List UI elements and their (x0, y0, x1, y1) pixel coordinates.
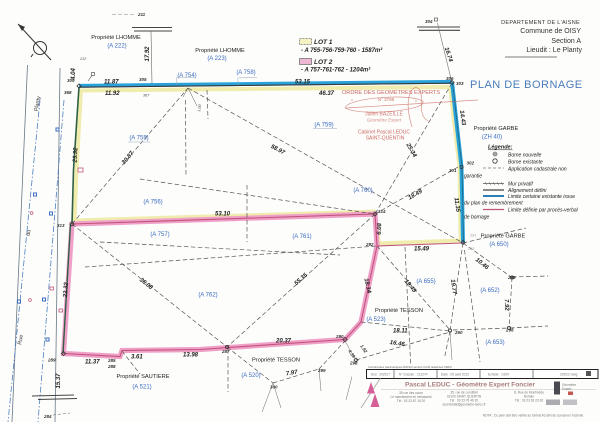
svg-text:13.98: 13.98 (183, 353, 199, 359)
svg-text:secretariat@geometre-leduc.fr: secretariat@geometre-leduc.fr (442, 403, 486, 407)
svg-text:Borne nouvelle: Borne nouvelle (508, 153, 542, 159)
svg-text:303: 303 (456, 81, 464, 86)
svg-text:11.92: 11.92 (105, 91, 120, 97)
svg-text:N° 3798: N° 3798 (378, 97, 395, 102)
svg-text:11.37: 11.37 (85, 360, 100, 366)
svg-text:Tél : 03 23 67 15 20: Tél : 03 23 67 15 20 (397, 399, 426, 403)
svg-text:Propriété GARBE: Propriété GARBE (481, 234, 526, 240)
svg-text:(A 759): (A 759) (314, 123, 333, 129)
svg-text:du: du (26, 229, 33, 236)
svg-text:288: 288 (107, 364, 116, 369)
svg-text:293: 293 (467, 247, 475, 251)
svg-text:DEPARTEMENT DE L'AISNE: DEPARTEMENT DE L'AISNE (501, 20, 580, 26)
svg-text:NOTA : Ce plan doit être vérif: NOTA : Ce plan doit être vérifié au form… (483, 414, 584, 418)
svg-text:*: * (351, 99, 353, 105)
svg-text:Limite définie par procès-verb: Limite définie par procès-verbal (508, 208, 579, 214)
svg-text:(A 756): (A 756) (143, 200, 162, 206)
svg-text:305: 305 (139, 77, 147, 82)
svg-text:Expert: Expert (562, 387, 571, 391)
svg-text:(A 761): (A 761) (292, 234, 311, 240)
svg-text:LOT 2: LOT 2 (314, 59, 333, 66)
svg-text:Commune de OISY: Commune de OISY (520, 28, 581, 35)
svg-text:(A 655): (A 655) (416, 279, 435, 285)
svg-text:Section A: Section A (551, 38, 581, 45)
svg-text:(A 520): (A 520) (241, 373, 260, 379)
svg-text:284: 284 (43, 414, 52, 419)
svg-text:(A 521): (A 521) (132, 385, 151, 391)
svg-text:*: * (415, 100, 417, 106)
svg-text:Propriété TESSON: Propriété TESSON (375, 308, 423, 314)
svg-text:(A 523): (A 523) (366, 317, 385, 323)
svg-text:Limite certaine existante issu: Limite certaine existante issue (508, 194, 575, 200)
svg-text:(A 222): (A 222) (107, 44, 126, 50)
svg-text:232: 232 (79, 57, 87, 61)
svg-text:306: 306 (446, 76, 454, 81)
svg-text:23.32: 23.32 (63, 282, 70, 299)
svg-text:Borne existante: Borne existante (508, 160, 543, 166)
svg-text:285: 285 (107, 358, 116, 363)
svg-text:53.15: 53.15 (295, 80, 311, 86)
svg-text:Propriété TESSON: Propriété TESSON (252, 358, 300, 364)
svg-text:260: 260 (454, 330, 463, 335)
svg-text:(A 762): (A 762) (198, 293, 217, 299)
svg-text:53.10: 53.10 (215, 212, 231, 218)
svg-text:367: 367 (143, 94, 150, 98)
svg-text:298: 298 (505, 328, 514, 333)
svg-text:Coordonnées planimétriques RGF: Coordonnées planimétriques RGF93 Lambert… (368, 365, 452, 369)
svg-text:46.37: 46.37 (318, 91, 335, 97)
svg-text:202917.dwg: 202917.dwg (560, 373, 578, 377)
svg-text:300: 300 (270, 385, 278, 390)
svg-text:23.92: 23.92 (73, 147, 80, 164)
svg-text:(ZH 40): (ZH 40) (482, 135, 502, 141)
svg-text:Propriété SAUTIERE: Propriété SAUTIERE (116, 374, 169, 380)
svg-text:6.08: 6.08 (377, 222, 383, 235)
svg-text:(A 757): (A 757) (150, 232, 169, 238)
svg-text:(A 760): (A 760) (353, 188, 372, 194)
svg-text:301: 301 (449, 168, 457, 173)
svg-text:18.11: 18.11 (393, 329, 408, 335)
svg-text:Propriété GARBE: Propriété GARBE (474, 126, 519, 132)
svg-text:17.92: 17.92 (145, 46, 151, 62)
svg-text:SAINT-QUENTIN: SAINT-QUENTIN (366, 136, 405, 142)
svg-text:(A 755): (A 755) (129, 136, 148, 142)
svg-text:- A 757-761-762 - 1204m²: - A 757-761-762 - 1204m² (301, 67, 371, 74)
svg-text:LOT 1: LOT 1 (314, 39, 333, 46)
svg-text:Lieudit : Le Planty: Lieudit : Le Planty (526, 47, 582, 54)
svg-text:7.92: 7.92 (503, 299, 510, 312)
svg-text:302: 302 (467, 161, 475, 166)
svg-text:314: 314 (378, 209, 386, 214)
svg-text:292: 292 (365, 242, 374, 247)
svg-text:(A 223): (A 223) (207, 56, 226, 62)
svg-text:(A 754): (A 754) (177, 73, 196, 79)
svg-text:garantie: garantie (464, 174, 482, 180)
svg-text:Géomètre Expert: Géomètre Expert (367, 118, 402, 123)
svg-text:20.37: 20.37 (275, 339, 292, 345)
svg-text:Propriété LHOMME: Propriété LHOMME (91, 35, 141, 41)
svg-text:309: 309 (67, 78, 75, 83)
svg-text:- A 755-756-759-760 - 1587m²: - A 755-756-759-760 - 1587m² (301, 47, 383, 54)
svg-text:368: 368 (64, 90, 72, 95)
svg-text:287: 287 (221, 349, 230, 354)
svg-text:Application cadastrale non: Application cadastrale non (507, 167, 567, 173)
svg-text:ORDRE DES GEOMÉTRES EXPERTS: ORDRE DES GEOMÉTRES EXPERTS (342, 89, 440, 96)
svg-text:290: 290 (335, 334, 344, 339)
svg-text:Dos : 202917: Dos : 202917 (371, 373, 390, 377)
svg-text:313: 313 (57, 223, 65, 228)
svg-text:PLAN DE BORNAGE: PLAN DE BORNAGE (470, 79, 583, 91)
svg-text:(A 652): (A 652) (480, 288, 499, 294)
svg-text:299: 299 (317, 368, 326, 373)
svg-text:289: 289 (47, 358, 56, 363)
svg-text:(A 653): (A 653) (485, 340, 504, 346)
svg-text:3.61: 3.61 (131, 355, 143, 361)
svg-text:(A 650): (A 650) (489, 242, 508, 248)
svg-text:Tél : 03 23 63 23 30: Tél : 03 23 63 23 30 (515, 399, 544, 403)
svg-text:15.49: 15.49 (414, 247, 430, 253)
svg-text:304: 304 (425, 19, 433, 24)
svg-text:Echelle : 1/200: Echelle : 1/200 (488, 373, 509, 377)
svg-text:Légende:: Légende: (488, 145, 513, 151)
svg-text:Propriété LHOMME: Propriété LHOMME (195, 48, 245, 54)
svg-text:du plan de remembrement: du plan de remembrement (464, 201, 523, 207)
svg-text:Pascal LEDUC - Géomètre Expert: Pascal LEDUC - Géomètre Expert Foncier (405, 382, 536, 389)
svg-text:(A 758): (A 758) (236, 70, 255, 76)
svg-text:15.37: 15.37 (56, 373, 62, 389)
svg-text:de bornage: de bornage (464, 215, 490, 221)
svg-text:Mur privatif: Mur privatif (508, 182, 533, 188)
svg-text:N° Dossier : 212274: N° Dossier : 212274 (399, 373, 428, 377)
svg-text:291: 291 (469, 234, 476, 238)
svg-text:211: 211 (137, 12, 146, 17)
svg-text:Date : 05 août 2022: Date : 05 août 2022 (441, 373, 469, 377)
svg-text:11.87: 11.87 (104, 80, 119, 86)
